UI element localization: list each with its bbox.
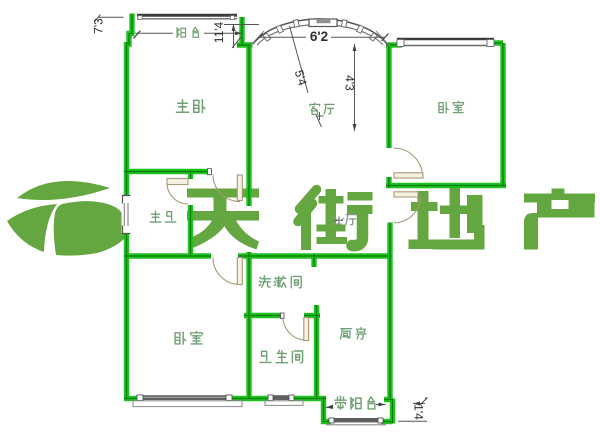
svg-text:7'3: 7'3 (92, 18, 106, 34)
svg-text:1'4: 1'4 (411, 404, 425, 420)
svg-text:4'3: 4'3 (342, 75, 356, 91)
svg-text:11'4: 11'4 (212, 21, 226, 43)
svg-text:6'2: 6'2 (310, 29, 328, 44)
